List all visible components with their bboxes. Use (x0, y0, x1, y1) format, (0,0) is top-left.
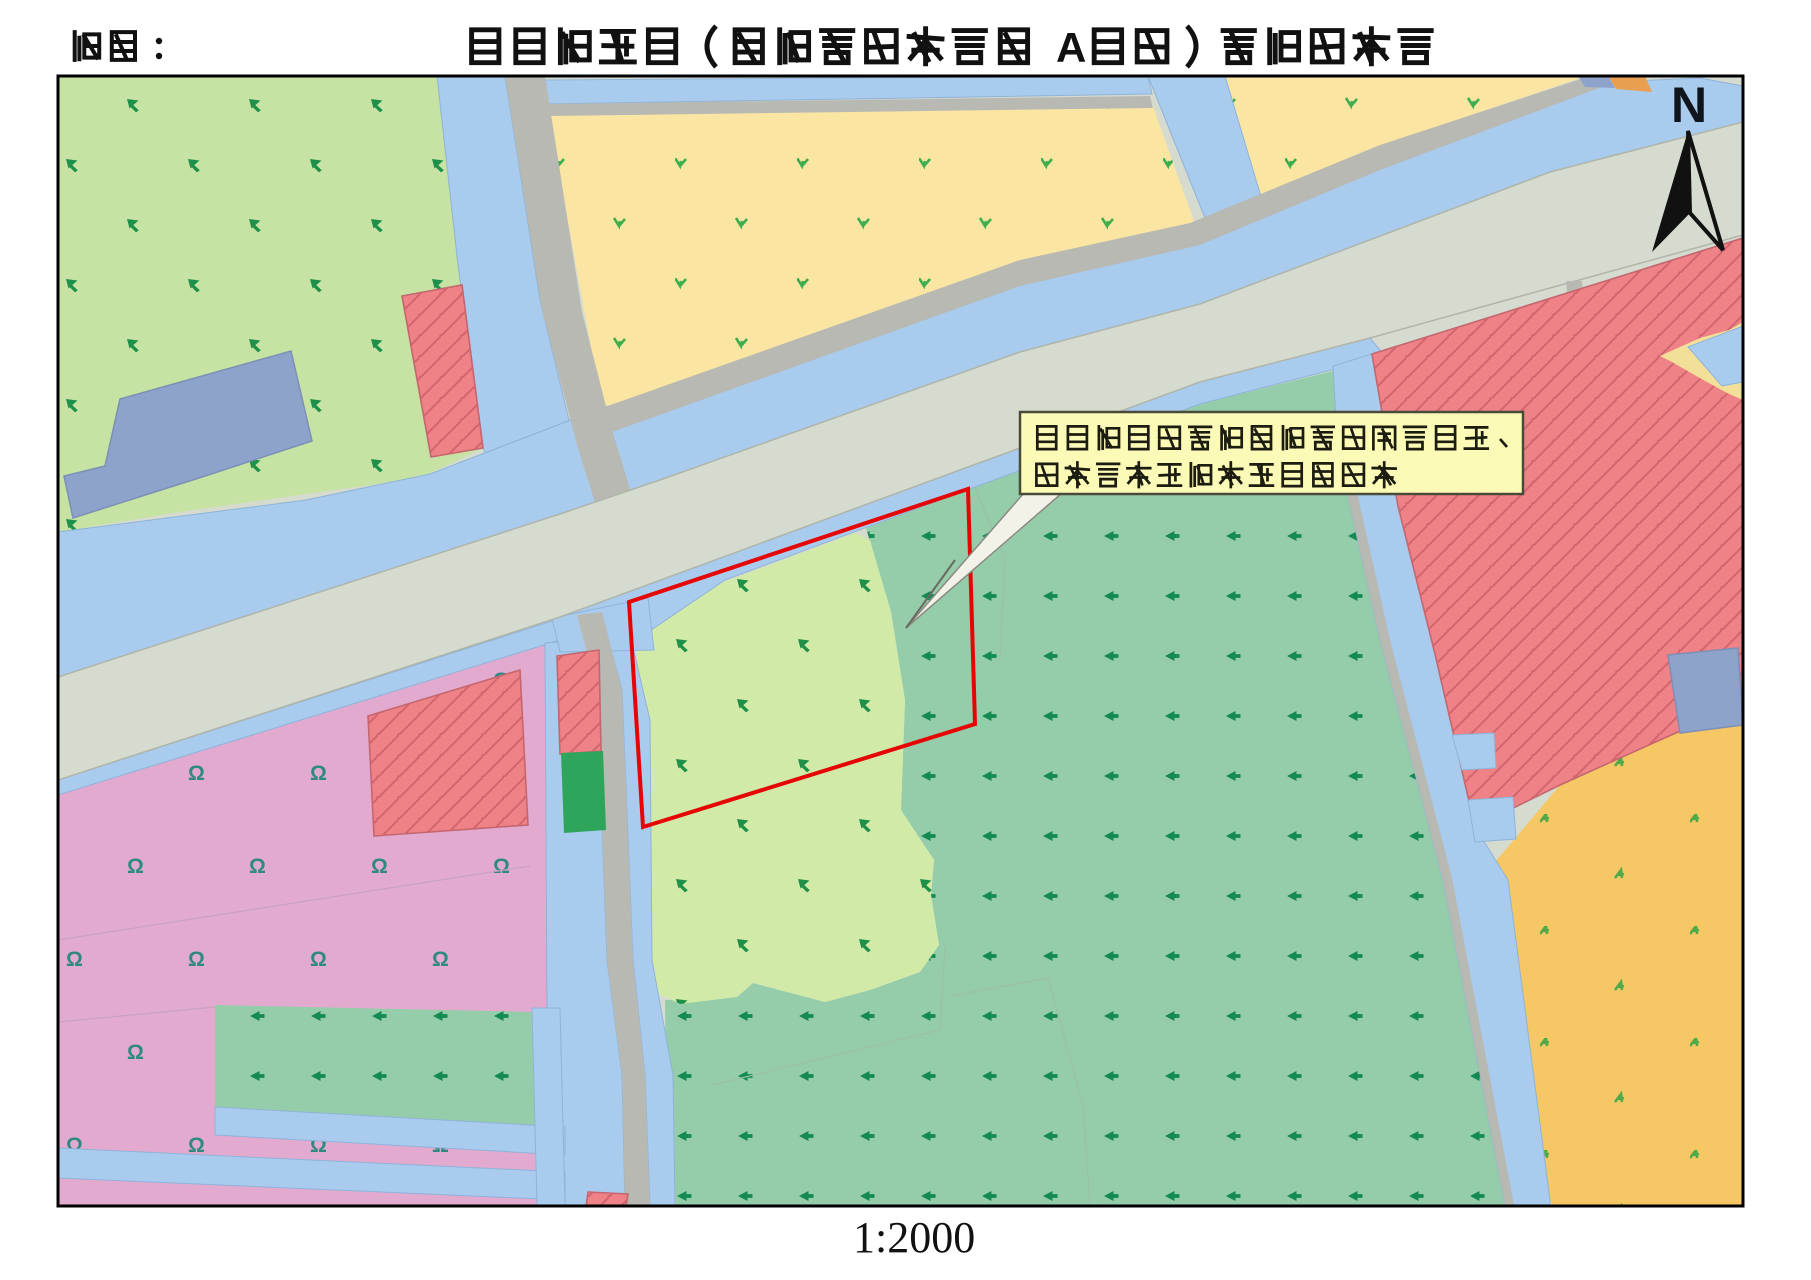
svg-text:N: N (1671, 77, 1707, 133)
svg-text:A: A (1056, 24, 1086, 71)
svg-text:1:2000: 1:2000 (853, 1213, 975, 1262)
